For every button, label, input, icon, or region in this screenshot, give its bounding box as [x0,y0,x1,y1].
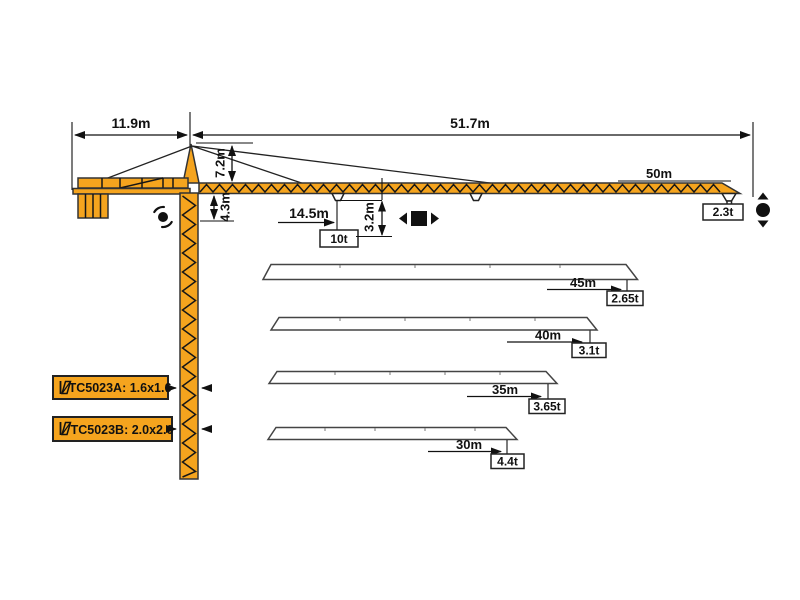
model-a-label: TC5023A: 1.6x1.6 [69,381,172,395]
slewing-icon [154,207,171,227]
variant-load-label: 2.65t [611,292,638,306]
jib-variant-35m: 35m 3.65t [269,372,565,414]
counter-jib [73,178,190,218]
tip-radius-label: 50m [646,166,672,181]
variant-length-label: 30m [456,437,482,452]
jib-variant-45m: 45m 2.65t [263,265,643,306]
tip-load-label: 2.3t [713,205,734,219]
under-jib-height-label: 4.3m [218,192,233,222]
model-b-label: TC5023B: 2.0x2.0 [71,423,174,437]
hook-height-label: 3.2m [362,202,377,232]
diagram-canvas: 11.9m 51.7m 7.2m [0,0,800,600]
counter-jib-length-label: 11.9m [112,115,151,131]
trolley-bracket [470,194,482,201]
dimension-under-jib-height: 4.3m [200,192,234,222]
ballast-blocks [78,194,108,218]
dimension-head-height: 7.2m [196,143,253,181]
trolley-radius-label: 14.5m [289,205,329,221]
main-jib [199,183,740,194]
variant-length-label: 35m [492,382,518,397]
variant-length-label: 40m [535,328,561,343]
tower-head [183,144,199,183]
crane-load-diagram: 11.9m 51.7m 7.2m [0,0,800,600]
jib-variant-40m: 40m 3.1t [271,318,606,358]
variant-load-label: 3.1t [579,344,600,358]
tip-hook [722,194,736,202]
trolley-bracket [332,194,344,201]
trolley-travel-icon [399,211,439,226]
hoist-icon [756,193,770,228]
variant-load-label: 4.4t [497,455,518,469]
head-height-label: 7.2m [213,148,228,178]
main-jib-length-label: 51.7m [450,115,490,131]
variant-load-label: 3.65t [533,400,560,414]
tower-mast [180,193,198,479]
variant-length-label: 45m [570,275,596,290]
jib-variant-30m: 30m 4.4t [268,428,524,469]
trolley-load-label: 10t [330,232,347,246]
